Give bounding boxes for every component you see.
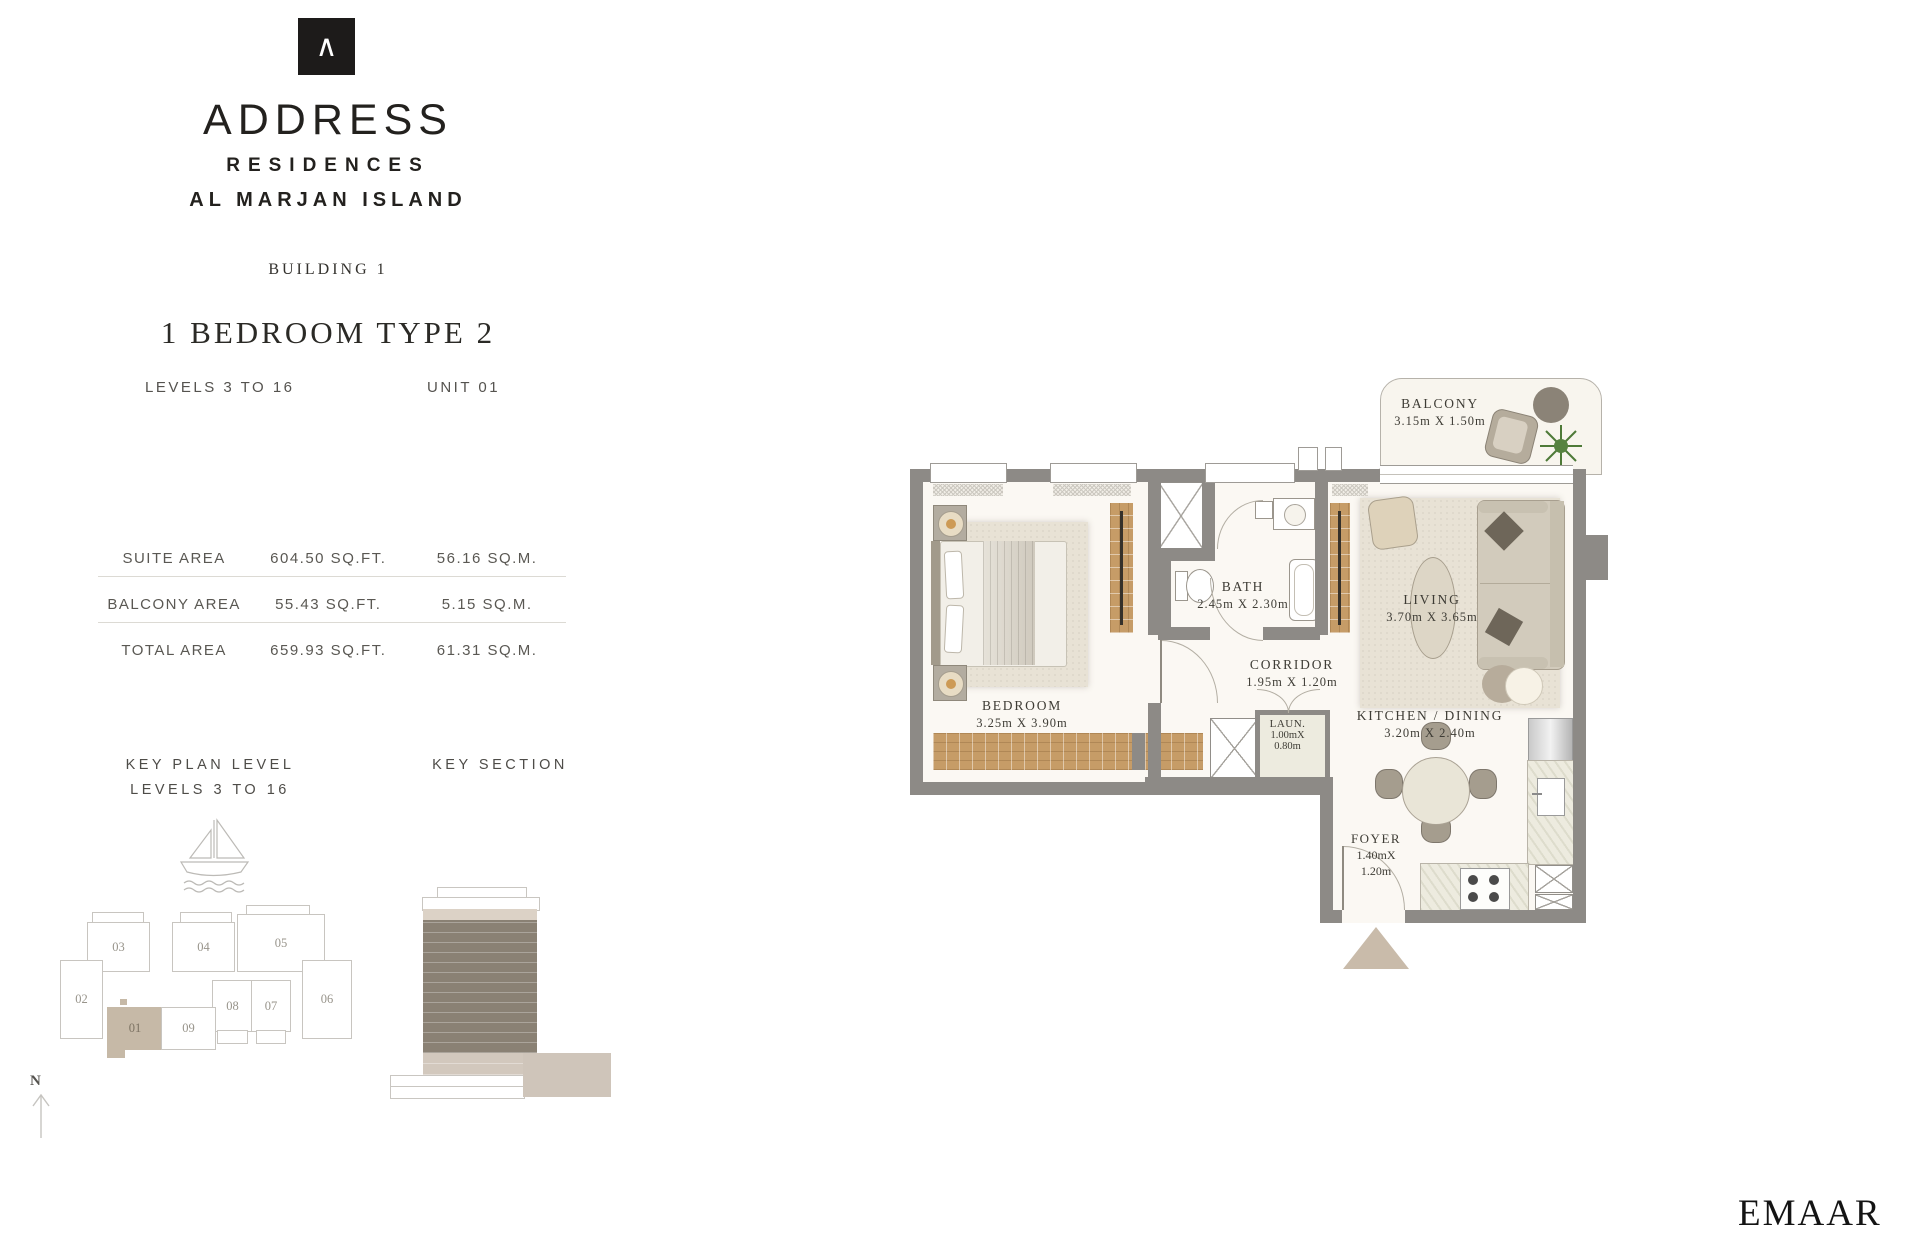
room-name: BEDROOM	[952, 698, 1092, 714]
key-plan-unit-07: 07	[251, 980, 291, 1032]
area-sqm: 56.16 SQ.M.	[411, 550, 563, 567]
brand-residences: RESIDENCES	[128, 155, 528, 177]
shaft-duct	[1210, 718, 1259, 779]
kitchen-sink	[1537, 778, 1565, 816]
room-label-bath: BATH 2.45m X 2.30m	[1173, 579, 1313, 612]
window	[1050, 463, 1137, 483]
room-name: LAUN.	[1260, 718, 1315, 730]
logo-caret-icon: ∧	[316, 29, 338, 64]
mask	[905, 795, 1320, 977]
bedroom-door-leaf	[1160, 640, 1162, 703]
sofa-pillow	[1484, 511, 1524, 551]
window-hatch	[933, 484, 1003, 496]
key-section-title: KEY SECTION	[410, 757, 590, 773]
table-divider	[98, 622, 566, 623]
wall-bath-top	[1158, 548, 1215, 561]
wall-bath-bottom	[1158, 627, 1210, 640]
room-name: KITCHEN / DINING	[1342, 708, 1518, 724]
north-arrow-icon	[26, 1090, 56, 1140]
sofa	[1477, 500, 1565, 670]
window-hatch	[1332, 484, 1368, 496]
room-dims: 1.95m X 1.20m	[1222, 675, 1362, 690]
key-plan-title: KEY PLAN LEVEL	[110, 757, 310, 773]
room-dims: 1.40mX	[1339, 848, 1413, 863]
dining-chair	[1375, 769, 1403, 799]
bath-vanity	[1273, 498, 1315, 530]
faucet-icon	[1532, 793, 1542, 795]
nightstand	[933, 665, 967, 701]
key-plan-unit-01-nub	[107, 1044, 125, 1058]
room-label-kitchen: KITCHEN / DINING 3.20m X 2.40m	[1342, 708, 1518, 741]
area-label: BALCONY AREA	[103, 596, 245, 613]
balcony-window-sill	[1380, 465, 1573, 484]
room-dims: 3.20m X 2.40m	[1342, 726, 1518, 741]
area-sqft: 55.43 SQ.FT.	[245, 596, 411, 613]
wall-protrusion	[1298, 447, 1318, 471]
wall-left	[910, 469, 923, 795]
unit-01-marker	[120, 999, 127, 1005]
side-table	[1505, 667, 1543, 705]
room-dims: 3.25m X 3.90m	[952, 716, 1092, 731]
room-name: CORRIDOR	[1222, 657, 1362, 673]
area-table: SUITE AREA 604.50 SQ.FT. 56.16 SQ.M.	[103, 540, 563, 576]
window	[930, 463, 1007, 483]
building-label: BUILDING 1	[128, 261, 528, 279]
wall-column	[1586, 535, 1608, 580]
area-sqm: 5.15 SQ.M.	[411, 596, 563, 613]
emaar-logo: EMAAR	[1738, 1192, 1882, 1235]
bottom-wardrobe	[933, 733, 1132, 770]
balcony-plant	[1538, 423, 1584, 469]
room-name: FOYER	[1339, 831, 1413, 847]
key-plan-unit-08: 08	[212, 980, 253, 1032]
window-hatch	[1053, 484, 1131, 496]
wall-right	[1573, 469, 1586, 923]
balcony-table	[1533, 387, 1569, 423]
brand-location: AL MARJAN ISLAND	[128, 189, 528, 212]
brand-name: ADDRESS	[128, 96, 528, 145]
key-plan-tab	[217, 1030, 248, 1044]
shaft-duct	[1535, 865, 1573, 893]
table-row: TOTAL AREA 659.93 SQ.FT. 61.31 SQ.M.	[103, 632, 563, 668]
bed-pillow	[944, 551, 964, 600]
key-plan-unit-06: 06	[302, 960, 352, 1039]
bed-blanket	[983, 541, 1035, 665]
levels-label: LEVELS 3 TO 16	[145, 379, 295, 396]
nightstand	[933, 505, 967, 541]
section-upper-beige	[423, 909, 537, 920]
bedroom-wardrobe	[1110, 503, 1133, 633]
area-label: SUITE AREA	[103, 550, 245, 567]
bed-pillow	[944, 605, 964, 654]
bed-headboard	[931, 541, 940, 665]
area-sqft: 659.93 SQ.FT.	[245, 642, 411, 659]
room-label-living: LIVING 3.70m X 3.65m	[1362, 592, 1502, 625]
key-plan-unit-04: 04	[172, 922, 235, 972]
sailboat-icon	[168, 812, 258, 897]
section-levels-3-16-highlighted	[423, 920, 537, 1053]
entry-arrow	[1343, 927, 1409, 969]
room-dims: 2.45m X 2.30m	[1173, 597, 1313, 612]
window	[1205, 463, 1295, 483]
dining-chair	[1469, 769, 1497, 799]
fridge	[1528, 718, 1573, 762]
wall-living-left	[1315, 482, 1328, 635]
wall-stub	[1148, 703, 1161, 777]
section-podium	[423, 1053, 537, 1075]
room-name: BALCONY	[1370, 396, 1510, 412]
room-name: BATH	[1173, 579, 1313, 595]
wall-corridor-bottom	[1145, 777, 1320, 795]
room-dims: 1.20m	[1339, 864, 1413, 879]
wall-protrusion	[1325, 447, 1342, 471]
room-dims: 0.80m	[1260, 741, 1315, 752]
section-annex	[523, 1053, 611, 1097]
key-plan-unit-02: 02	[60, 960, 103, 1039]
room-dims: 1.00mX	[1260, 730, 1315, 741]
room-label-foyer: FOYER 1.40mX 1.20m	[1339, 831, 1413, 879]
room-label-balcony: BALCONY 3.15m X 1.50m	[1370, 396, 1510, 429]
address-logo-mark: ∧	[298, 18, 355, 75]
room-dims: 3.70m X 3.65m	[1362, 610, 1502, 625]
floor-plan: LAUN. 1.00mX 0.80m	[905, 365, 1620, 977]
room-dims: 3.15m X 1.50m	[1370, 414, 1510, 429]
dining-table	[1402, 757, 1470, 825]
corridor-wardrobe	[1330, 503, 1350, 633]
area-sqm: 61.31 SQ.M.	[411, 642, 563, 659]
page-title: 1 BEDROOM TYPE 2	[78, 315, 578, 351]
room-name: LIVING	[1362, 592, 1502, 608]
lamp-icon	[938, 671, 964, 697]
wall	[1132, 733, 1145, 770]
key-plan-tab	[256, 1030, 286, 1044]
area-sqft: 604.50 SQ.FT.	[245, 550, 411, 567]
table-divider	[98, 576, 566, 577]
sink-basin	[1284, 504, 1306, 526]
section-base-band	[390, 1086, 525, 1099]
wall-bottom	[1405, 910, 1586, 923]
stove	[1460, 868, 1510, 910]
key-plan-levels: LEVELS 3 TO 16	[110, 782, 310, 798]
laundry-closet: LAUN. 1.00mX 0.80m	[1255, 710, 1330, 787]
lamp-icon	[938, 511, 964, 537]
wall-bath-bottom	[1263, 627, 1320, 640]
room-label-bedroom: BEDROOM 3.25m X 3.90m	[952, 698, 1092, 731]
brochure-page: ∧ ADDRESS RESIDENCES AL MARJAN ISLAND BU…	[0, 0, 1920, 1247]
key-plan-unit-09: 09	[161, 1007, 216, 1050]
armchair	[1367, 495, 1420, 551]
north-label: N	[30, 1073, 41, 1090]
table-row: SUITE AREA 604.50 SQ.FT. 56.16 SQ.M.	[103, 540, 563, 576]
shaft-duct	[1158, 482, 1204, 550]
shaft-duct	[1535, 894, 1573, 910]
unit-label: UNIT 01	[427, 379, 500, 396]
area-label: TOTAL AREA	[103, 642, 245, 659]
wall-bottom	[1320, 910, 1342, 923]
table-row: BALCONY AREA 55.43 SQ.FT. 5.15 SQ.M.	[103, 586, 563, 622]
wall-foyer-left	[1320, 777, 1333, 923]
room-label-corridor: CORRIDOR 1.95m X 1.20m	[1222, 657, 1362, 690]
